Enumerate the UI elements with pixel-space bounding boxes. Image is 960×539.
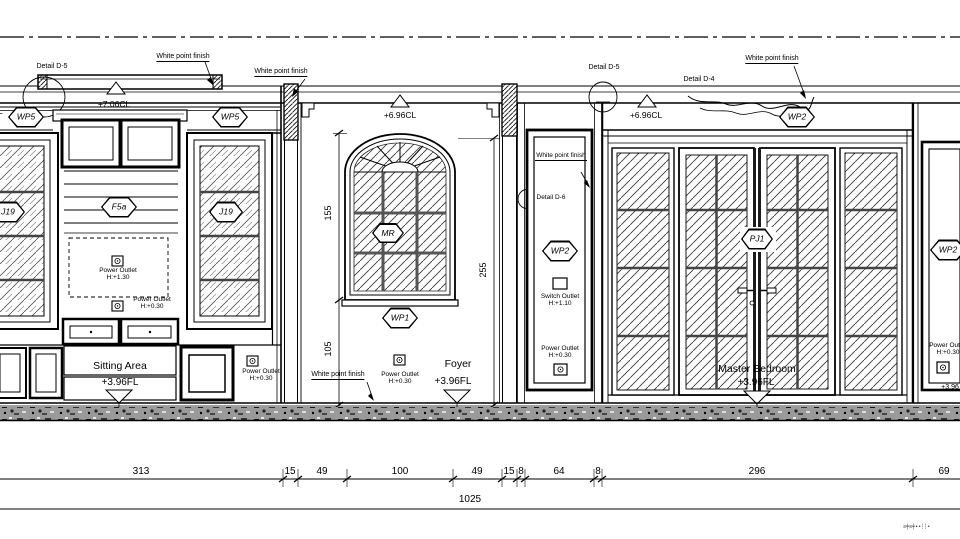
floor-level-master: +3.96FL	[738, 377, 775, 388]
master-bedroom-doors	[602, 103, 913, 403]
tag-text: WP5	[212, 107, 248, 128]
switch-outlet-label: Switch Outlet	[541, 293, 579, 300]
tag-text: WP2	[542, 241, 578, 262]
finish-note-foyer-top: White point finish	[254, 68, 307, 77]
detail-callout-d6: Detail D-6	[537, 194, 566, 201]
floor-level-sitting: +3.96FL	[102, 377, 139, 388]
tag-mr-mirror: MR	[372, 223, 404, 243]
sitting-area-cabinet	[0, 86, 281, 403]
dim-segment: 15	[284, 466, 295, 477]
dim-segment: 100	[392, 466, 409, 477]
power-outlet-label: Power Outlet	[99, 267, 137, 274]
dim-segment: 8	[518, 466, 524, 477]
tag-text: WP1	[382, 308, 418, 329]
tag-text: MR	[372, 223, 404, 243]
dim-segment: 69	[938, 466, 949, 477]
detail-callout-mid: Detail D-5	[588, 64, 619, 71]
tag-wp5-right: WP5	[212, 107, 248, 128]
power-outlet-height: H:+0.30	[929, 349, 960, 356]
finish-note-master-top: White point finish	[745, 55, 798, 64]
dim-segment: 49	[471, 466, 482, 477]
power-outlet-label: Power Outlet	[242, 368, 280, 375]
elevation-drawing-canvas: Detail D-5 White point finish +7.06CL Wh…	[0, 0, 960, 539]
tag-wp2-right: WP2	[930, 240, 960, 261]
power-outlet-030-foyer: Power Outlet H:+0.30	[381, 371, 419, 386]
ceiling-level-foyer: +6.96CL	[384, 110, 416, 120]
power-outlet-label: Power Outlet	[133, 296, 171, 303]
tag-text: WP2	[779, 107, 815, 128]
tag-text: PJ1	[741, 229, 773, 250]
power-outlet-height: H:+0.30	[242, 375, 280, 382]
power-outlet-030-cabinet: Power Outlet H:+0.30	[133, 296, 171, 311]
illegible-corner-stamp: ≡╪≡╪∙∙┆┆∙	[903, 524, 930, 530]
tag-wp5-left: WP5	[8, 107, 44, 128]
dim-segment: 64	[553, 466, 564, 477]
switch-outlet-110: Switch Outlet H:+1.10	[541, 293, 579, 308]
power-outlet-030-right: Power Outlet H:+0.30	[929, 342, 960, 357]
power-outlet-height: H:+0.30	[133, 303, 171, 310]
power-outlet-height: H:+1.30	[99, 274, 137, 281]
tag-wp2-cornice: WP2	[779, 107, 815, 128]
power-outlet-label: Power Outlet	[929, 342, 960, 349]
tag-text: F5a	[101, 197, 137, 218]
room-label-sitting-area: Sitting Area	[93, 360, 147, 372]
tag-wp2-jamb: WP2	[542, 241, 578, 262]
room-label-master-bedroom: Master Bedroom	[718, 363, 796, 375]
power-outlet-height: H:+0.30	[541, 352, 579, 359]
tag-text: WP2	[930, 240, 960, 261]
tag-text: J19	[209, 202, 243, 223]
dim-segment: 8	[595, 466, 601, 477]
tag-text: J19	[0, 202, 25, 223]
tag-wp1: WP1	[382, 308, 418, 329]
finish-note-foyer-base: White point finish	[311, 371, 364, 380]
power-outlet-label: Power Outlet	[541, 345, 579, 352]
finish-note-valance: White point finish	[156, 53, 209, 62]
dim-segment: 313	[133, 466, 150, 477]
dim-segment: 15	[503, 466, 514, 477]
ceiling-level-right: +6.96CL	[630, 110, 662, 120]
ceiling-lines	[0, 37, 960, 103]
ceiling-level-left: +7.06CL	[98, 99, 130, 109]
floor-level-right-partial: +3.96	[941, 384, 959, 391]
floor-level-foyer: +3.96FL	[435, 376, 472, 387]
floor-band	[0, 403, 960, 421]
tag-pj1-door: PJ1	[741, 229, 773, 250]
dim-window-height: 155	[323, 205, 333, 220]
dim-sill-height: 105	[323, 341, 333, 356]
power-outlet-030-base: Power Outlet H:+0.30	[242, 368, 280, 383]
power-outlet-030-jamb: Power Outlet H:+0.30	[541, 345, 579, 360]
power-outlet-height: H:+0.30	[381, 378, 419, 385]
edge-cut-label: L	[0, 106, 3, 116]
dim-total: 1025	[459, 494, 481, 505]
tag-j19-right: J19	[209, 202, 243, 223]
power-outlet-130: Power Outlet H:+1.30	[99, 267, 137, 282]
tag-text: WP5	[8, 107, 44, 128]
dim-segment: 296	[749, 466, 766, 477]
detail-callout-left: Detail D-5	[36, 63, 67, 70]
power-outlet-label: Power Outlet	[381, 371, 419, 378]
tag-j19-left: J19	[0, 202, 25, 223]
finish-note-jamb: White point finish	[535, 152, 587, 161]
room-label-foyer: Foyer	[445, 358, 472, 370]
dim-wall-height: 255	[478, 262, 488, 277]
dim-segment: 49	[316, 466, 327, 477]
detail-callout-d4: Detail D-4	[683, 76, 714, 83]
tag-f5a: F5a	[101, 197, 137, 218]
switch-outlet-height: H:+1.10	[541, 300, 579, 307]
